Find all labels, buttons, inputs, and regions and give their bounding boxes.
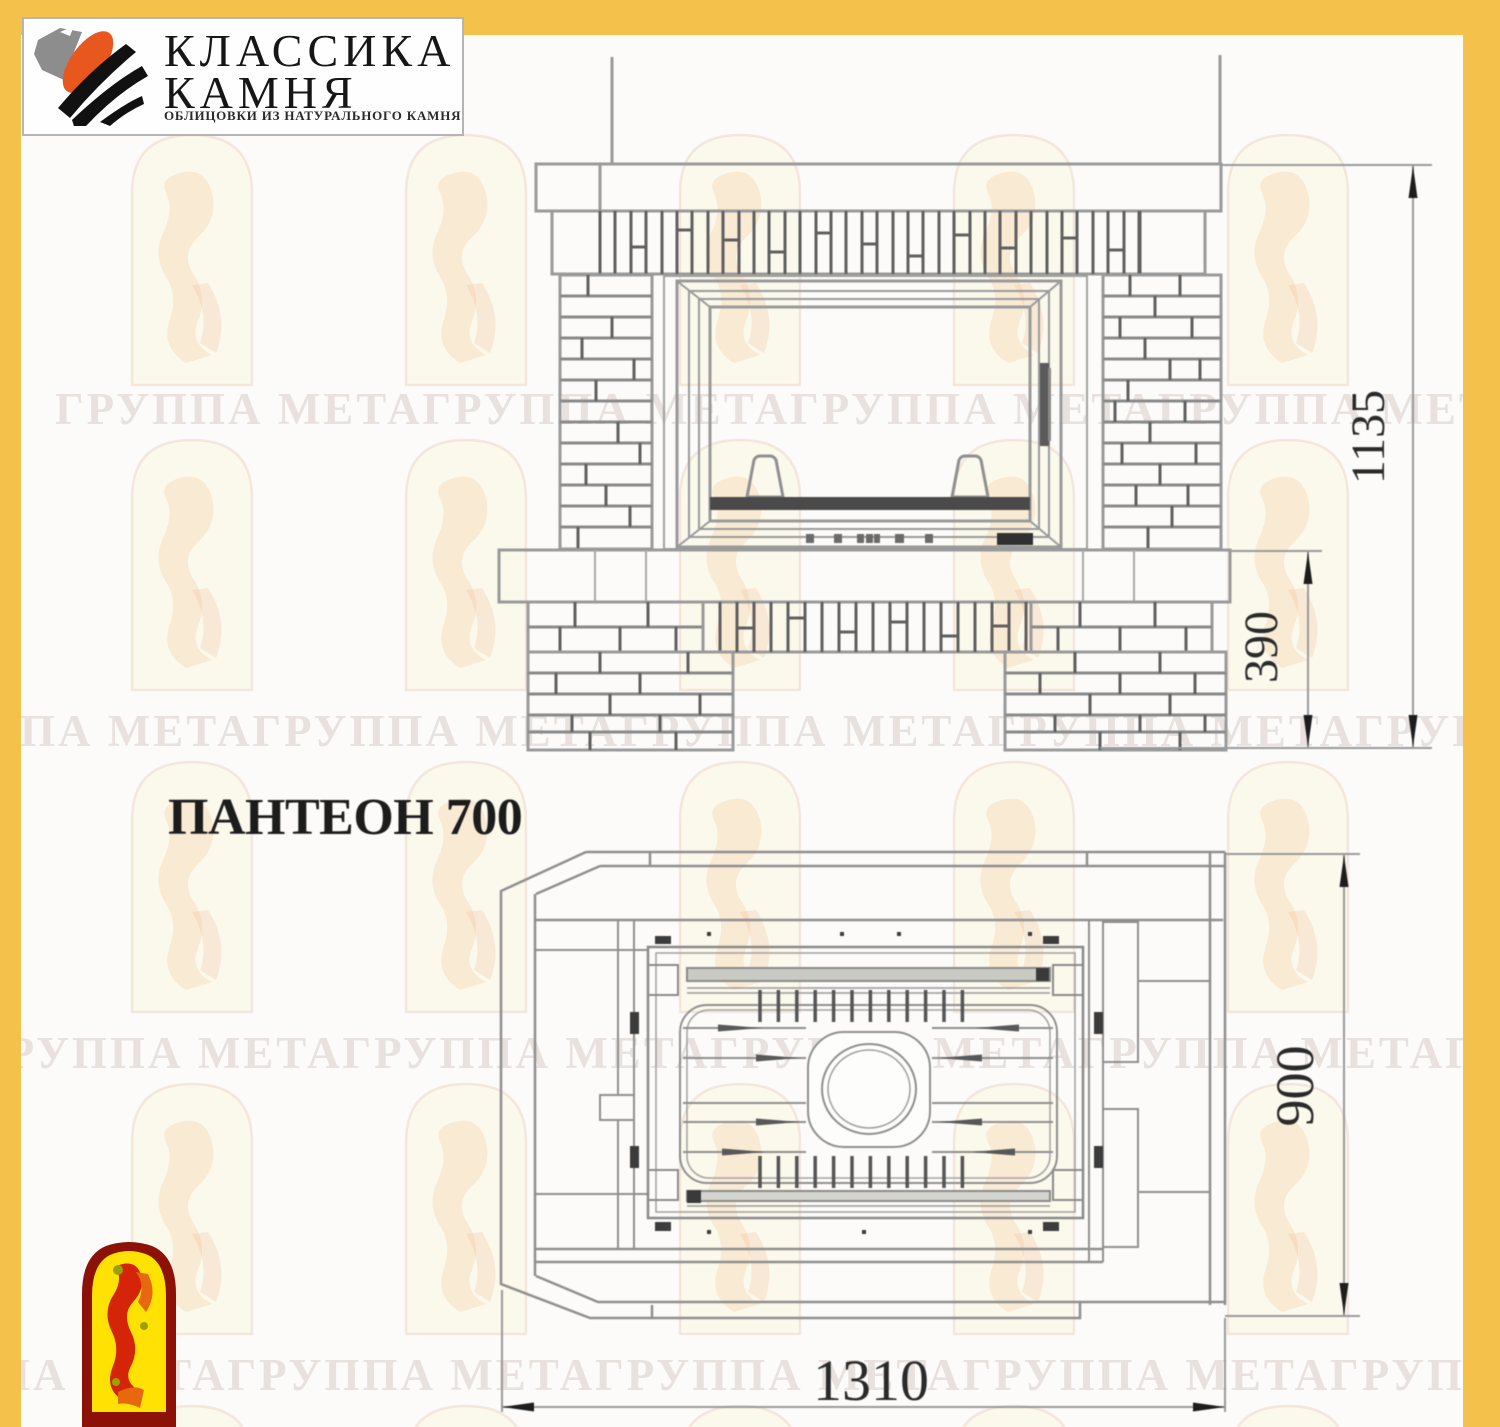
svg-text:1310: 1310	[813, 1348, 929, 1413]
svg-text:1135: 1135	[1342, 390, 1395, 484]
svg-text:390: 390	[1235, 611, 1288, 683]
svg-text:900: 900	[1265, 1046, 1325, 1127]
svg-text:ПАНТЕОН 700: ПАНТЕОН 700	[168, 789, 522, 846]
